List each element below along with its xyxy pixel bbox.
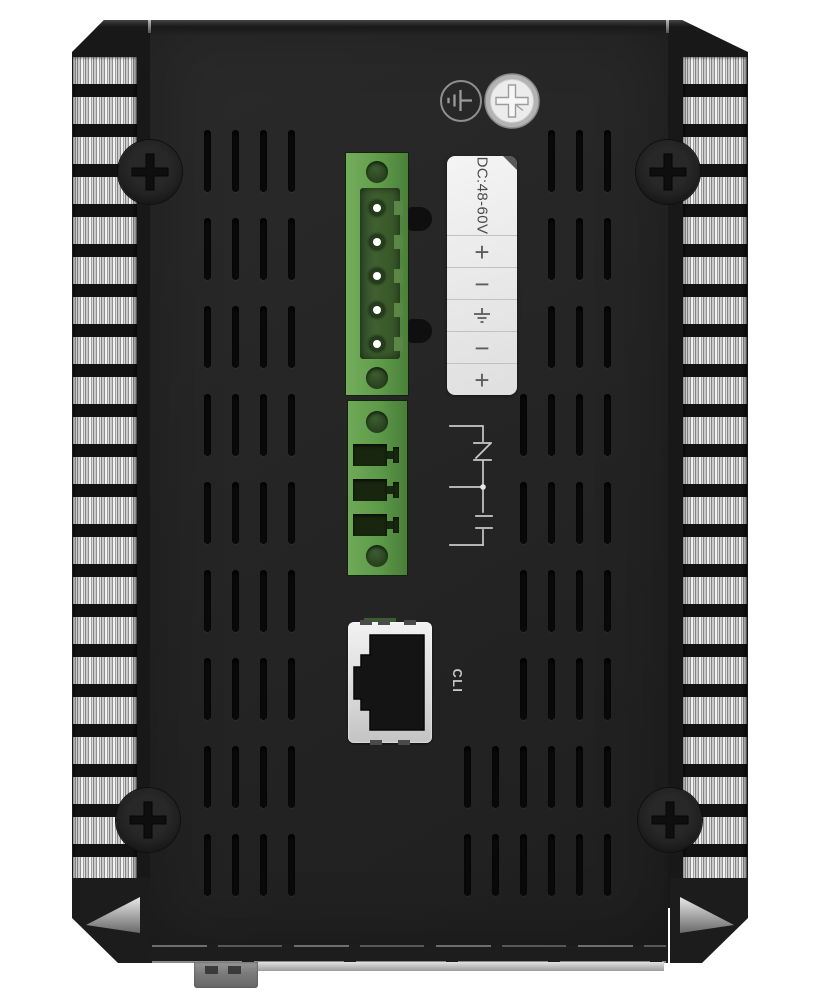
vent-slot <box>260 130 267 192</box>
vent-slot <box>548 746 555 808</box>
socket-slot-3 <box>353 514 387 536</box>
vent-slot <box>232 130 239 192</box>
plug-pin-3 <box>373 272 381 280</box>
vent-slot <box>548 482 555 544</box>
vent-slot <box>604 130 611 192</box>
corner-screw-bottom-left <box>116 788 180 852</box>
plug-screw-hole-bottom <box>366 367 388 389</box>
plug-pin-2 <box>373 238 381 246</box>
terminal-marking-minus-1: − <box>447 267 517 299</box>
vent-slot <box>520 834 527 896</box>
vent-slot <box>576 658 583 720</box>
rear-panel-face <box>150 20 668 945</box>
corner-screw-top-right <box>636 140 700 204</box>
vent-slot <box>576 394 583 456</box>
mounting-ear-right <box>670 878 748 963</box>
vent-slot <box>604 218 611 280</box>
plug-pin-1 <box>373 204 381 212</box>
vent-slot <box>232 218 239 280</box>
panel-seam-left <box>148 20 151 33</box>
vent-slot <box>288 394 295 456</box>
vent-slot <box>204 834 211 896</box>
vent-slot <box>288 834 295 896</box>
bottom-edge-strip <box>150 945 668 963</box>
vent-slot <box>464 834 471 896</box>
power-rating-label: DC:48-60V + − − + <box>447 156 517 395</box>
vent-slot <box>204 130 211 192</box>
vent-slot <box>548 570 555 632</box>
vent-slot <box>260 394 267 456</box>
vent-slot <box>260 570 267 632</box>
vent-slot <box>204 482 211 544</box>
socket-slot-1 <box>353 444 387 466</box>
vent-slot <box>232 834 239 896</box>
vent-slot <box>260 658 267 720</box>
power-rating-text: DC:48-60V <box>447 156 517 235</box>
relay-contact-schematic-icon <box>440 415 520 560</box>
vent-slot <box>260 746 267 808</box>
rj45-cavity <box>348 622 432 743</box>
bottom-base-plate <box>258 962 664 971</box>
vent-slot <box>204 306 211 368</box>
vent-slot <box>576 482 583 544</box>
vent-slot <box>576 746 583 808</box>
vent-slot <box>232 658 239 720</box>
plug-contacts <box>394 201 403 215</box>
vent-slot <box>288 306 295 368</box>
vent-slot <box>204 394 211 456</box>
bottom-connector <box>194 962 258 988</box>
alarm-terminal-socket <box>347 400 408 576</box>
vent-slot <box>492 834 499 896</box>
vent-slot <box>604 394 611 456</box>
console-port-rj45 <box>348 622 432 743</box>
corner-screw-top-left <box>118 140 182 204</box>
vent-slot <box>232 306 239 368</box>
vent-slot <box>604 746 611 808</box>
console-port-label: CLI <box>448 661 464 701</box>
plug-screw-hole-top <box>366 161 388 183</box>
vent-slot <box>204 658 211 720</box>
vent-slot <box>548 306 555 368</box>
vent-slot <box>260 306 267 368</box>
vent-slot <box>232 394 239 456</box>
corner-screw-bottom-right <box>638 788 702 852</box>
vent-slot <box>260 482 267 544</box>
vent-slot <box>548 218 555 280</box>
vent-slot <box>604 570 611 632</box>
vent-slot <box>288 218 295 280</box>
vent-slot <box>520 482 527 544</box>
vent-slot <box>492 746 499 808</box>
product-photo-stage: DC:48-60V + − − + <box>0 0 820 1000</box>
vent-slot <box>520 746 527 808</box>
vent-slot <box>604 482 611 544</box>
vent-slot <box>204 570 211 632</box>
vent-slot <box>576 834 583 896</box>
vent-slot <box>464 746 471 808</box>
vent-slot <box>232 746 239 808</box>
vent-slot <box>260 834 267 896</box>
vent-slot <box>604 306 611 368</box>
vent-slot <box>288 746 295 808</box>
vent-slot <box>548 834 555 896</box>
grounding-screw <box>483 72 541 130</box>
vent-slot <box>520 658 527 720</box>
vent-slot <box>288 570 295 632</box>
top-edge-bevel <box>72 20 748 36</box>
vent-slot <box>576 130 583 192</box>
device-body: DC:48-60V + − − + <box>72 20 748 963</box>
vent-slot <box>576 306 583 368</box>
vent-slot <box>576 570 583 632</box>
mounting-ear-left <box>72 878 150 963</box>
socket-screw-hole-bottom <box>366 545 388 567</box>
vent-slot <box>520 570 527 632</box>
terminal-marking-plus-2: + <box>447 363 517 395</box>
terminal-marking-plus-1: + <box>447 235 517 267</box>
vent-slot <box>288 658 295 720</box>
vent-slot <box>288 482 295 544</box>
plug-pin-5 <box>373 340 381 348</box>
socket-slot-2 <box>353 479 387 501</box>
socket-screw-hole-top <box>366 411 388 433</box>
vent-slot <box>604 658 611 720</box>
vent-slot <box>548 658 555 720</box>
power-terminal-plug <box>345 152 409 396</box>
bottom-connector-pins <box>205 966 218 974</box>
vent-slot <box>604 834 611 896</box>
panel-seam-right <box>666 20 669 33</box>
vent-slot <box>204 746 211 808</box>
vent-slot <box>260 218 267 280</box>
vent-slot <box>548 130 555 192</box>
vent-slot <box>548 394 555 456</box>
terminal-marking-minus-2: − <box>447 331 517 363</box>
vent-slot <box>232 482 239 544</box>
rj45-mounting-tabs <box>360 620 372 625</box>
plug-pin-4 <box>373 306 381 314</box>
earth-ground-icon <box>447 299 517 331</box>
vent-slot <box>204 218 211 280</box>
vent-slot <box>576 218 583 280</box>
protective-earth-icon <box>440 80 482 122</box>
plug-latch-top <box>408 207 432 231</box>
plug-latch-bottom <box>408 319 432 343</box>
vent-slot <box>288 130 295 192</box>
vent-slot <box>520 394 527 456</box>
vent-slot <box>232 570 239 632</box>
